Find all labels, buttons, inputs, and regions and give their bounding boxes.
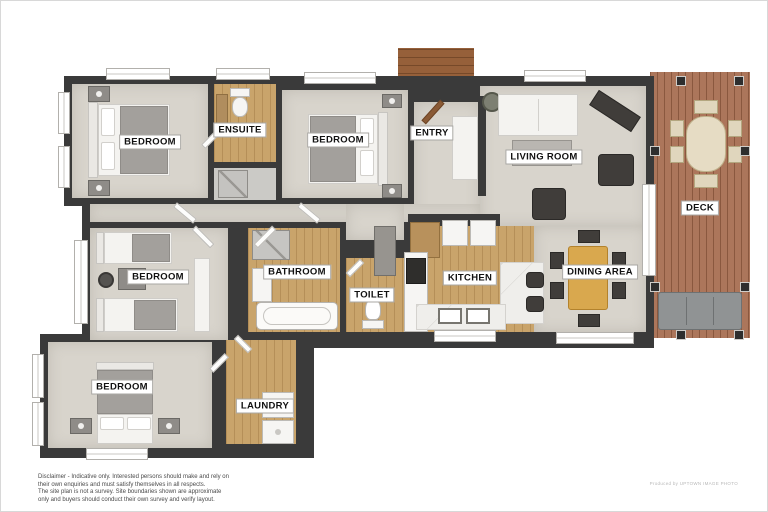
- label-bedroom2: BEDROOM: [307, 133, 369, 148]
- floor-plan-image: BEDROOM ENSUITE BEDROOM ENTRY LIVING ROO…: [0, 0, 768, 512]
- nightstand: [382, 94, 402, 108]
- label-living: LIVING ROOM: [505, 150, 582, 165]
- label-toilet: TOILET: [349, 288, 394, 303]
- dryer: [262, 420, 294, 444]
- pillow: [101, 108, 115, 136]
- pillow: [100, 417, 124, 430]
- bed-headboard: [378, 112, 388, 186]
- bed-headboard: [96, 232, 104, 264]
- window: [58, 92, 70, 134]
- nightstand: [158, 418, 180, 434]
- pillow: [360, 150, 374, 176]
- dining-chair: [612, 282, 626, 299]
- outdoor-table: [686, 116, 726, 172]
- window: [86, 448, 148, 460]
- kitchen-appliance: [470, 220, 496, 246]
- window: [556, 332, 634, 344]
- deck-post: [676, 330, 686, 340]
- sliding-door-to-deck: [642, 184, 656, 276]
- outdoor-chair: [694, 174, 718, 188]
- disclaimer-line: only and buyers should conduct their own…: [38, 497, 378, 505]
- kitchen-appliance: [442, 220, 468, 246]
- disclaimer-line: The site plan is not a survey. Site boun…: [38, 489, 378, 497]
- wall-entry-living: [478, 96, 486, 196]
- disclaimer-line: their own enquiries and must satisfy the…: [38, 482, 378, 490]
- stool: [526, 272, 544, 288]
- deck-post: [740, 282, 750, 292]
- deck-post: [650, 146, 660, 156]
- bed-blanket: [310, 116, 356, 182]
- wall-clock: [98, 272, 114, 288]
- deck-post: [650, 282, 660, 292]
- armchair: [598, 154, 634, 186]
- outdoor-chair: [670, 120, 684, 137]
- bed-headboard: [88, 102, 98, 178]
- bed-headboard: [96, 298, 104, 332]
- label-entry: ENTRY: [410, 126, 453, 141]
- outdoor-chair: [694, 100, 718, 114]
- deck-post: [734, 76, 744, 86]
- label-bedroom4: BEDROOM: [91, 380, 153, 395]
- window: [216, 68, 270, 80]
- label-bedroom1: BEDROOM: [119, 135, 181, 150]
- toilet-cistern: [362, 320, 384, 329]
- armchair: [532, 188, 566, 220]
- dining-chair: [578, 314, 600, 327]
- outdoor-chair: [670, 146, 684, 163]
- window: [524, 70, 586, 82]
- window: [304, 72, 376, 84]
- deck-post: [676, 76, 686, 86]
- sofa: [498, 94, 578, 136]
- window: [32, 402, 44, 446]
- label-dining: DINING AREA: [562, 265, 638, 280]
- label-kitchen: KITCHEN: [443, 271, 497, 286]
- disclaimer: Disclaimer - Indicative only. Interested…: [38, 474, 378, 504]
- nightstand: [88, 180, 110, 196]
- stove: [406, 258, 426, 284]
- toilet-cistern: [230, 88, 250, 97]
- label-laundry: LAUNDRY: [236, 399, 294, 414]
- label-ensuite: ENSUITE: [213, 123, 266, 138]
- window: [74, 240, 88, 324]
- window: [434, 330, 496, 342]
- cupboard: [374, 226, 396, 276]
- dining-chair: [550, 282, 564, 299]
- nightstand: [70, 418, 92, 434]
- dining-chair: [578, 230, 600, 243]
- entry-bench: [452, 116, 478, 180]
- toilet-bowl: [232, 97, 248, 117]
- window: [58, 146, 70, 188]
- credit-text: Produced by UPTOWN IMAGE PHOTO: [650, 481, 738, 486]
- pillow: [127, 417, 151, 430]
- label-bathroom: BATHROOM: [263, 265, 331, 280]
- sink: [466, 308, 490, 324]
- pillow: [101, 142, 115, 170]
- shower: [218, 170, 248, 198]
- bathtub: [256, 302, 338, 330]
- wardrobe: [194, 258, 210, 332]
- stool: [526, 296, 544, 312]
- window: [32, 354, 44, 398]
- nightstand: [382, 184, 402, 198]
- outdoor-sofa: [658, 292, 742, 330]
- nightstand: [88, 86, 110, 102]
- deck-post: [740, 146, 750, 156]
- sink: [438, 308, 462, 324]
- label-bedroom3: BEDROOM: [127, 270, 189, 285]
- bed-blanket: [134, 300, 176, 330]
- deck-post: [734, 330, 744, 340]
- disclaimer-line: Disclaimer - Indicative only. Interested…: [38, 474, 378, 482]
- bed-headboard: [96, 362, 154, 370]
- outdoor-chair: [728, 120, 742, 137]
- bed-blanket: [132, 234, 170, 262]
- window: [106, 68, 170, 80]
- label-deck: DECK: [681, 201, 719, 216]
